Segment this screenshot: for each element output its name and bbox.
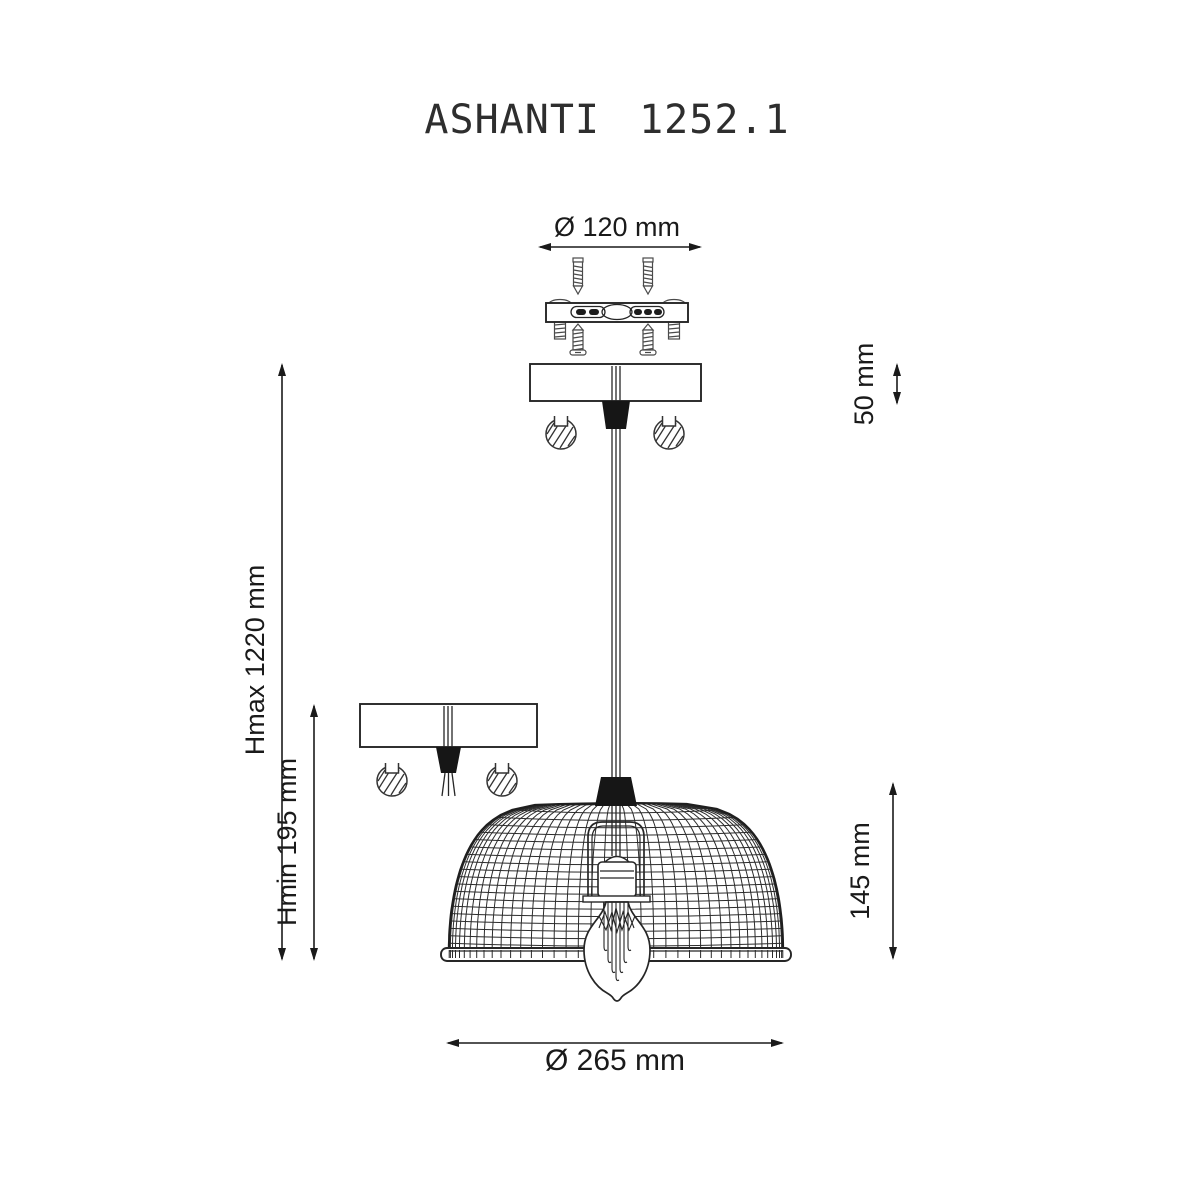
cord-grip-top (602, 401, 630, 429)
screw-section-right (654, 416, 684, 449)
cord-grip (436, 747, 461, 773)
height-min-label: Hmin 195 mm (272, 758, 302, 926)
pendant-lamp-drawing: ASHANTI 1252.1 Ø 120 mm (0, 0, 1200, 1200)
drawing-title: ASHANTI 1252.1 (424, 97, 789, 143)
dim-canopy-height: 50 mm (849, 343, 901, 426)
arrow-left-icon (446, 1039, 459, 1047)
mount-screw-right (640, 324, 656, 355)
slot-screw-head (634, 309, 642, 315)
canopy-height-label: 50 mm (849, 343, 879, 426)
arrow-down-icon (310, 948, 318, 961)
arrow-down-icon (889, 947, 897, 960)
arrow-left-icon (538, 243, 551, 251)
mounting-bracket (546, 300, 688, 340)
slot-screw-head (644, 309, 652, 315)
dim-height-min: Hmin 195 mm (272, 704, 318, 961)
dim-shade-height: 145 mm (845, 782, 897, 960)
arrow-up-icon (310, 704, 318, 717)
slot-screw-head (654, 309, 662, 315)
shade-height-label: 145 mm (845, 822, 875, 920)
cord-grip-shade (595, 777, 637, 806)
canopy-min-view (360, 704, 537, 796)
arrow-right-icon (689, 243, 702, 251)
screw-section-right (487, 763, 517, 796)
arrow-up-icon (893, 363, 901, 376)
mesh-dome-shade (441, 777, 791, 1001)
wall-anchor-left (573, 258, 583, 294)
screw-section-left (546, 416, 576, 449)
height-max-label: Hmax 1220 mm (240, 565, 270, 756)
socket-body (598, 862, 636, 897)
mount-diameter-label: Ø 120 mm (554, 212, 680, 242)
arrow-up-icon (889, 782, 897, 795)
technical-drawing-page: ASHANTI 1252.1 Ø 120 mm (0, 0, 1200, 1200)
wall-anchor-right (643, 258, 653, 294)
cage-cable (612, 806, 620, 856)
cage-bottom-ring (583, 896, 650, 902)
arrow-down-icon (278, 948, 286, 961)
dim-mount-diameter: Ø 120 mm (538, 212, 702, 251)
shade-diameter-label: Ø 265 mm (545, 1044, 685, 1077)
arrow-right-icon (771, 1039, 784, 1047)
suspension-cable (612, 429, 620, 778)
arrow-up-icon (278, 363, 286, 376)
arrow-down-icon (893, 392, 901, 405)
cable-bundle (442, 773, 455, 796)
dim-shade-diameter: Ø 265 mm (446, 1039, 784, 1077)
slot-screw-head (576, 309, 586, 315)
mounting-hardware (546, 258, 688, 355)
slot-screw-head (589, 309, 599, 315)
mount-screw-left (570, 324, 586, 355)
screw-section-left (377, 763, 407, 796)
